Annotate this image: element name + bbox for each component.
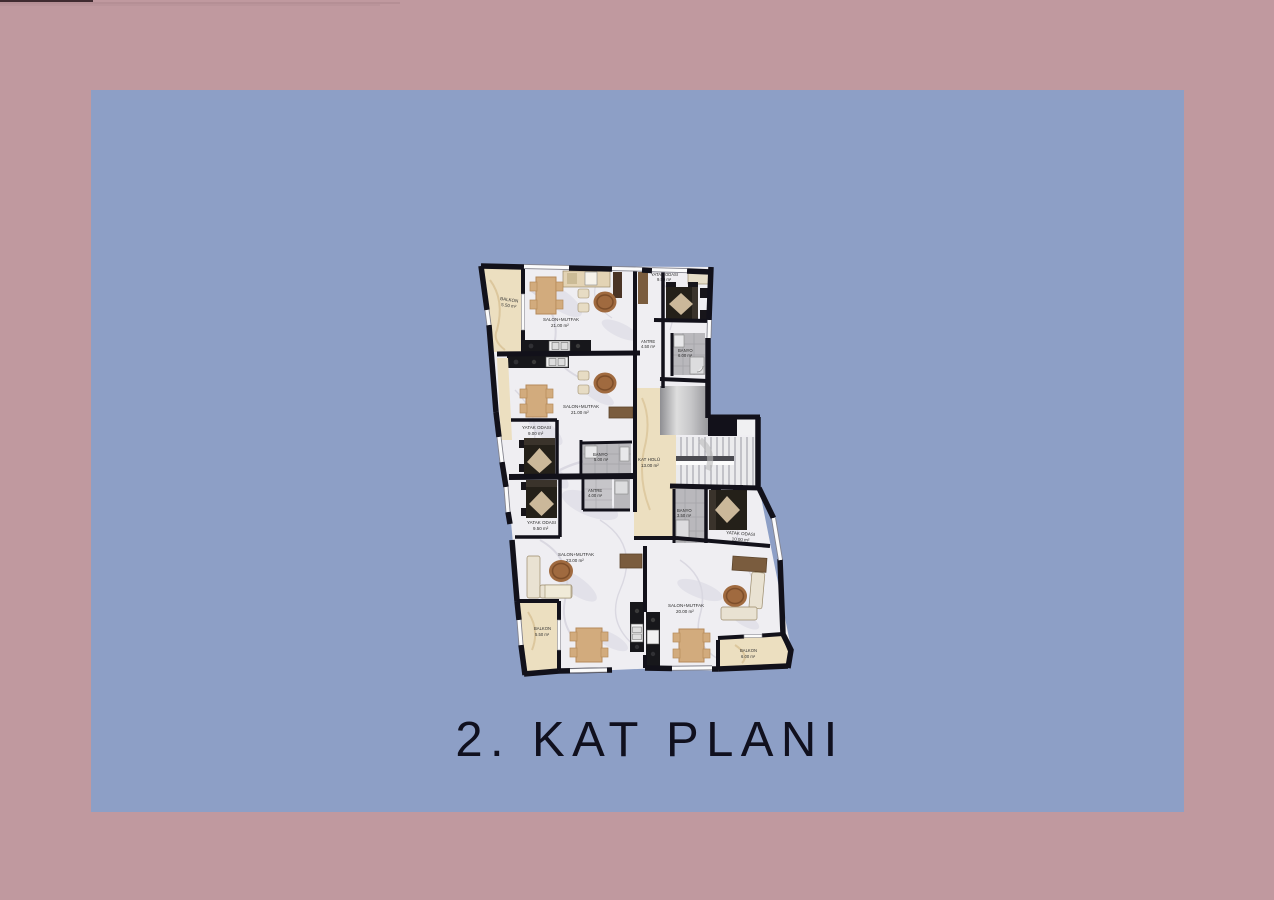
svg-text:5.00 m²: 5.00 m² bbox=[594, 457, 609, 462]
svg-text:9.50 m²: 9.50 m² bbox=[533, 526, 549, 531]
svg-text:SALON+MUTFAK: SALON+MUTFAK bbox=[543, 317, 579, 322]
svg-text:4.50 m²: 4.50 m² bbox=[641, 344, 656, 349]
svg-text:6.00 m²: 6.00 m² bbox=[741, 654, 756, 659]
svg-text:3.50 m²: 3.50 m² bbox=[677, 513, 692, 518]
svg-text:9.00 m²: 9.00 m² bbox=[528, 431, 544, 436]
svg-text:23.00 m²: 23.00 m² bbox=[566, 558, 584, 563]
svg-text:6.00 m²: 6.00 m² bbox=[678, 353, 693, 358]
svg-text:BALKON: BALKON bbox=[534, 626, 551, 631]
svg-text:KAT HOLÜ: KAT HOLÜ bbox=[638, 456, 660, 462]
svg-text:21.00 m²: 21.00 m² bbox=[571, 410, 589, 415]
svg-text:YATAK ODASI: YATAK ODASI bbox=[522, 425, 551, 430]
svg-text:SALON+MUTFAK: SALON+MUTFAK bbox=[563, 404, 599, 409]
svg-text:YATAK ODASI: YATAK ODASI bbox=[527, 520, 556, 525]
svg-text:2. KAT PLANI: 2. KAT PLANI bbox=[455, 713, 844, 767]
svg-text:4.00 m²: 4.00 m² bbox=[588, 493, 603, 498]
svg-text:13.00 m²: 13.00 m² bbox=[641, 463, 659, 468]
svg-text:SALON+MUTFAK: SALON+MUTFAK bbox=[668, 603, 704, 608]
svg-text:20.00 m²: 20.00 m² bbox=[676, 609, 694, 614]
svg-text:21.00 m²: 21.00 m² bbox=[551, 323, 569, 328]
svg-text:BALKON: BALKON bbox=[740, 648, 757, 653]
svg-text:5.50 m²: 5.50 m² bbox=[535, 632, 550, 637]
svg-text:SALON+MUTFAK: SALON+MUTFAK bbox=[558, 552, 594, 557]
